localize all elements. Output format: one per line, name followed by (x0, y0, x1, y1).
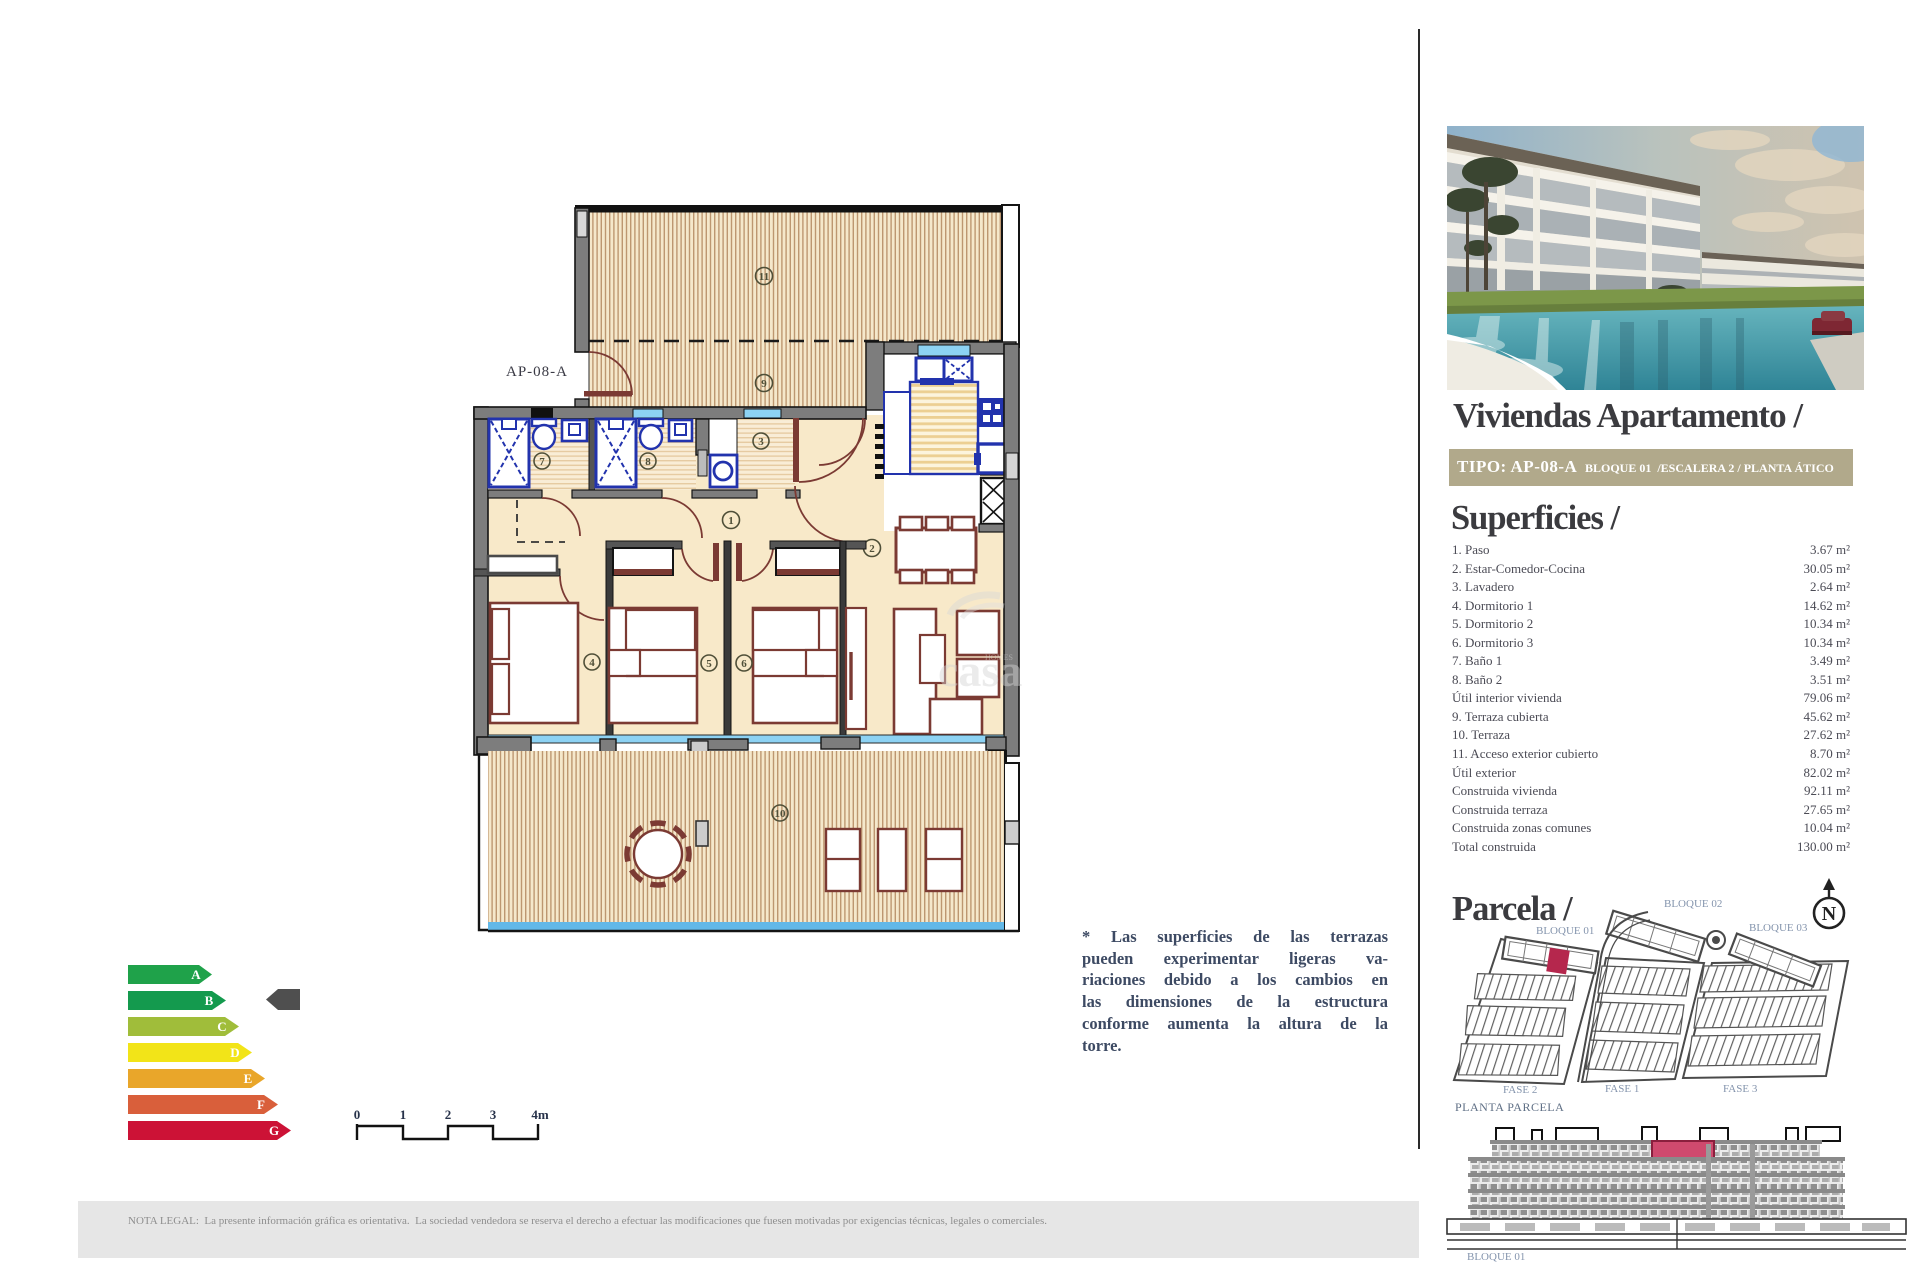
svg-text:FASE 2: FASE 2 (1503, 1084, 1537, 1096)
svg-text:1: 1 (728, 515, 734, 527)
svg-text:10: 10 (775, 808, 787, 820)
svg-text:F: F (257, 1097, 265, 1112)
svg-text:C: C (217, 1019, 226, 1034)
svg-text:4: 4 (589, 657, 595, 669)
svg-text:0: 0 (354, 1107, 361, 1122)
svg-text:BLOQUE 03: BLOQUE 03 (1749, 922, 1808, 934)
svg-text:8: 8 (645, 456, 651, 468)
svg-text:3: 3 (758, 436, 764, 448)
svg-text:11: 11 (759, 271, 769, 283)
svg-text:HOMES: HOMES (985, 653, 1013, 662)
svg-text:AP-08-A: AP-08-A (506, 364, 568, 380)
svg-text:2: 2 (869, 543, 875, 555)
svg-text:FASE 3: FASE 3 (1723, 1083, 1758, 1095)
svg-text:E: E (244, 1071, 253, 1086)
svg-text:2: 2 (445, 1107, 452, 1122)
svg-text:FASE 1: FASE 1 (1605, 1083, 1639, 1095)
svg-text:1: 1 (400, 1107, 407, 1122)
svg-text:4m: 4m (531, 1107, 549, 1122)
svg-text:B: B (205, 993, 214, 1008)
svg-text:5: 5 (706, 658, 712, 670)
svg-text:6: 6 (741, 658, 747, 670)
svg-text:G: G (269, 1123, 279, 1138)
svg-text:PLANTA PARCELA: PLANTA PARCELA (1455, 1100, 1564, 1114)
svg-text:A: A (191, 967, 201, 982)
svg-text:9: 9 (761, 378, 767, 390)
svg-text:3: 3 (490, 1107, 497, 1122)
svg-text:BLOQUE 02: BLOQUE 02 (1664, 898, 1722, 910)
svg-text:N: N (1822, 903, 1837, 925)
svg-text:7: 7 (539, 456, 545, 468)
svg-text:BLOQUE 01: BLOQUE 01 (1467, 1251, 1525, 1263)
svg-text:D: D (230, 1045, 239, 1060)
